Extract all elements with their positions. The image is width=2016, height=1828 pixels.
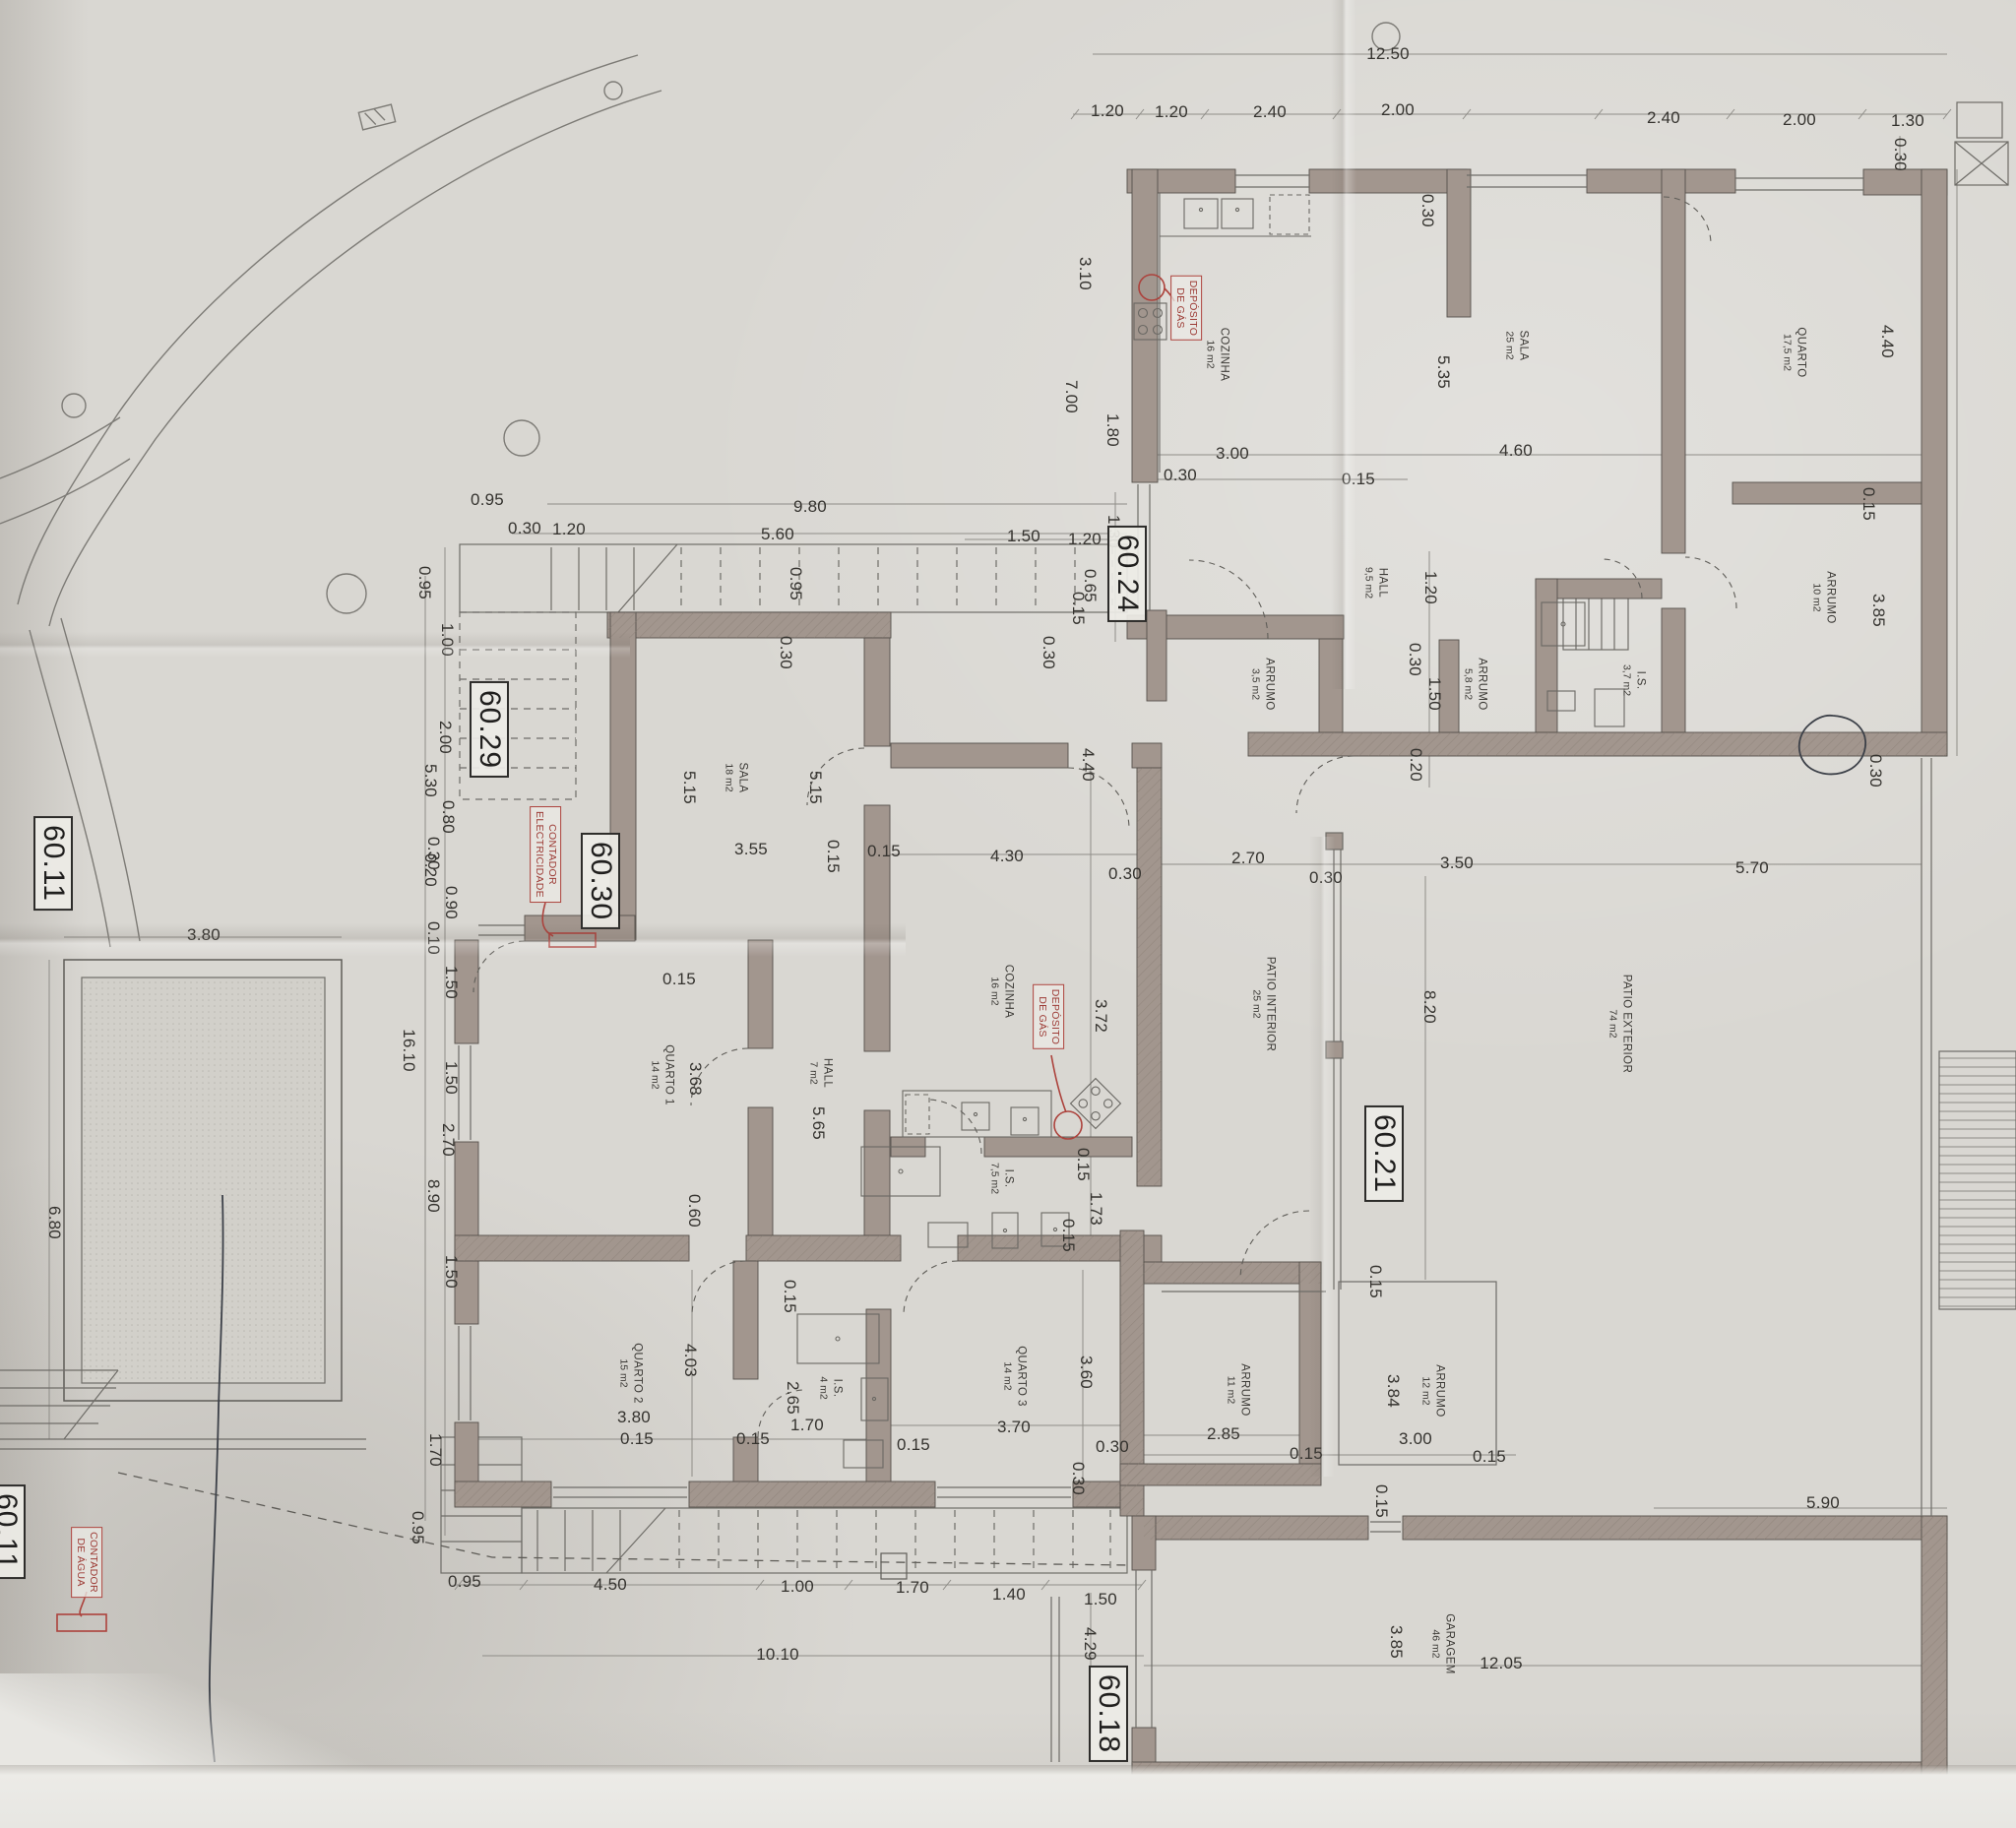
room-name: GARAGEM: [1441, 1613, 1456, 1674]
dim-label: 2.40: [1253, 102, 1287, 122]
dim-label: 2.00: [1381, 100, 1415, 120]
dim-label: 3.55: [734, 840, 768, 859]
dim-label: 0.30: [508, 519, 541, 538]
room-area: 5,8 m2: [1461, 658, 1475, 711]
dim-label: 0.30: [1108, 864, 1142, 884]
red-annotation-contador-agua: CONTADORDE ÁGUA: [71, 1527, 102, 1598]
room-area: 16 m2: [987, 965, 1001, 1019]
room-label-is-7-5: I.S.7,5 m2: [987, 1163, 1016, 1194]
room-area: 25 m2: [1502, 330, 1516, 360]
room-area: 17,5 m2: [1780, 327, 1794, 377]
room-name: HALL: [819, 1058, 834, 1088]
dim-label: 1.50: [1007, 527, 1040, 546]
dim-label-vertical: 16.10: [399, 1029, 418, 1072]
dim-label: 4.60: [1499, 441, 1533, 461]
room-label-quarto-1: QUARTO 114 m2: [648, 1044, 676, 1105]
dim-label: 0.30: [1096, 1437, 1129, 1457]
dim-label-vertical: 0.30: [1039, 636, 1058, 669]
room-label-garagem: GARAGEM46 m2: [1428, 1613, 1457, 1674]
dim-label: 1.70: [790, 1416, 824, 1435]
dim-label: 1.70: [896, 1578, 929, 1598]
room-label-hall-a: HALL9,5 m2: [1361, 567, 1390, 599]
red-annotation-line: DEPÓSITO: [1048, 989, 1061, 1044]
dim-label-vertical: 0.15: [1371, 1484, 1391, 1518]
dim-label-vertical: 1.50: [1424, 677, 1444, 711]
dim-label: 3.00: [1216, 444, 1249, 464]
dim-label-vertical: 3.84: [1383, 1374, 1403, 1408]
red-annotation-line: CONTADOR: [545, 811, 558, 898]
room-label-quarto-a: QUARTO17,5 m2: [1780, 327, 1808, 377]
room-name: COZINHA: [1216, 328, 1230, 382]
room-area: 74 m2: [1606, 975, 1619, 1073]
room-name: I.S.: [1000, 1163, 1015, 1194]
room-area: 25 m2: [1249, 957, 1263, 1052]
room-area: 3,7 m2: [1619, 664, 1633, 696]
elevation-marker-60-30: 60.30: [581, 833, 620, 929]
dim-label-vertical: 0.90: [441, 886, 461, 919]
dim-label: 4.50: [594, 1575, 627, 1595]
room-label-arrumo-11: ARRUMO11 m2: [1224, 1363, 1252, 1417]
dim-label-vertical: 2.00: [435, 721, 455, 754]
red-annotation-line: DE GÁS: [1173, 281, 1186, 336]
room-name: QUARTO 1: [661, 1044, 675, 1105]
dim-label: 1.20: [552, 520, 586, 539]
dim-label-vertical: 0.10: [423, 921, 443, 955]
dim-label-vertical: 0.15: [1858, 487, 1878, 521]
dim-label-vertical: 3.68: [685, 1062, 705, 1096]
elevation-marker-60-11: 60.11: [0, 1484, 26, 1579]
room-area: 18 m2: [722, 762, 735, 792]
elevation-marker-60-18: 60.18: [1089, 1666, 1128, 1762]
room-label-quarto-2: QUARTO 215 m2: [616, 1343, 645, 1404]
dim-label: 2.00: [1783, 110, 1816, 130]
dim-label-vertical: 0.30: [1890, 138, 1910, 171]
dim-label-vertical: 2.70: [438, 1123, 458, 1157]
dim-label-vertical: 0.95: [414, 566, 434, 599]
dim-label-vertical: 0.30: [776, 636, 795, 669]
elevation-marker-60-11: 60.11: [33, 816, 73, 911]
dim-label-vertical: 1.73: [1086, 1192, 1105, 1226]
dim-label-vertical: 1.80: [1102, 413, 1122, 447]
red-annotation-contador-electricidade: CONTADORELECTRICIDADE: [530, 806, 561, 903]
room-label-patio-exterior: PATIO EXTERIOR74 m2: [1606, 975, 1634, 1073]
red-annotation-line: CONTADOR: [87, 1532, 99, 1593]
dim-label-vertical: 0.15: [1365, 1265, 1385, 1298]
dim-label: 1.50: [1084, 1590, 1117, 1609]
dim-label: 2.70: [1231, 849, 1265, 868]
dim-label: 0.95: [471, 490, 504, 510]
plan-text-labels: 12.501.201.202.402.002.402.001.303.004.6…: [0, 0, 2016, 1828]
room-name: SALA: [734, 762, 749, 792]
room-area: 46 m2: [1428, 1613, 1442, 1674]
dim-label: 1.30: [1891, 111, 1924, 131]
dim-label-vertical: 3.60: [1076, 1355, 1096, 1389]
dim-label-vertical: 1.20: [1420, 571, 1440, 604]
dim-label: 9.80: [793, 497, 827, 517]
dim-label: 0.15: [620, 1429, 654, 1449]
dim-label-vertical: 0.15: [823, 840, 843, 873]
dim-label: 10.10: [756, 1645, 799, 1665]
dim-label: 3.70: [997, 1418, 1031, 1437]
dim-label-vertical: 1.50: [441, 1061, 461, 1095]
red-annotation-line: DEPÓSITO: [1186, 281, 1199, 336]
dim-label-vertical: 0.15: [1073, 1148, 1093, 1181]
dim-label-vertical: 0.15: [1058, 1219, 1078, 1252]
room-label-quarto-3: QUARTO 314 m2: [1000, 1346, 1029, 1407]
room-area: 16 m2: [1203, 328, 1217, 382]
red-annotation-line: DE GÁS: [1036, 989, 1048, 1044]
room-label-arrumo-10: ARRUMO10 m2: [1809, 571, 1838, 624]
room-area: 12 m2: [1418, 1364, 1432, 1418]
elevation-marker-60-21: 60.21: [1364, 1105, 1404, 1202]
room-label-arrumo-5-8: ARRUMO5,8 m2: [1461, 658, 1489, 711]
dim-label: 0.15: [1342, 470, 1375, 489]
room-name: ARRUMO: [1474, 658, 1488, 711]
dim-label: 0.15: [1290, 1444, 1323, 1464]
room-area: 7,5 m2: [987, 1163, 1001, 1194]
red-annotation-line: DE ÁGUA: [74, 1532, 87, 1593]
dim-label: 4.30: [990, 847, 1024, 866]
dim-label-vertical: 0.30: [1405, 643, 1424, 676]
dim-label-vertical: 3.85: [1868, 594, 1888, 627]
red-annotation-line: ELECTRICIDADE: [533, 811, 545, 898]
dim-label-vertical: 0.30: [1068, 1462, 1088, 1495]
dim-label-vertical: 4.29: [1080, 1627, 1100, 1661]
room-area: 4 m2: [816, 1376, 830, 1399]
dim-label: 0.30: [1164, 466, 1197, 485]
room-label-arrumo-3-5: ARRUMO3,5 m2: [1248, 658, 1277, 711]
dim-label: 3.50: [1440, 853, 1474, 873]
room-area: 10 m2: [1809, 571, 1823, 624]
room-label-sala-b: SALA18 m2: [722, 762, 750, 792]
dim-label: 0.15: [897, 1435, 930, 1455]
dim-label: 2.85: [1207, 1424, 1240, 1444]
room-name: QUARTO 3: [1013, 1346, 1028, 1407]
dim-label: 2.40: [1647, 108, 1680, 128]
room-area: 14 m2: [648, 1044, 661, 1105]
dim-label-vertical: 0.20: [1406, 748, 1425, 782]
dim-label: 0.95: [448, 1572, 481, 1592]
dim-label: 1.20: [1068, 530, 1102, 549]
dim-label: 0.15: [662, 970, 696, 989]
room-area: 9,5 m2: [1361, 567, 1375, 599]
room-name: SALA: [1515, 330, 1530, 360]
room-name: PATIO INTERIOR: [1262, 957, 1277, 1052]
dim-label-vertical: 3.85: [1386, 1625, 1406, 1659]
dim-label-vertical: 8.90: [423, 1179, 443, 1213]
dim-label: 0.30: [1309, 868, 1343, 888]
dim-label-vertical: 1.50: [441, 966, 461, 999]
room-name: I.S.: [1632, 664, 1647, 696]
red-annotation-deposito-gas-2: DEPÓSITODE GÁS: [1033, 984, 1064, 1049]
dim-label-vertical: 0.15: [1068, 592, 1088, 625]
room-area: 11 m2: [1224, 1363, 1237, 1417]
room-area: 3,5 m2: [1248, 658, 1262, 711]
dim-label: 5.60: [761, 525, 794, 544]
dim-label-vertical: 5.30: [420, 764, 440, 797]
dim-label: 12.05: [1480, 1654, 1523, 1673]
dim-label-vertical: 5.35: [1433, 355, 1453, 389]
dim-label-vertical: 8.20: [1419, 990, 1439, 1024]
room-name: ARRUMO: [1236, 1363, 1251, 1417]
dim-label: 3.80: [187, 925, 220, 945]
room-name: ARRUMO: [1822, 571, 1837, 624]
dim-label-vertical: 0.20: [420, 853, 440, 887]
room-name: I.S.: [829, 1376, 844, 1399]
dim-label-vertical: 4.40: [1078, 748, 1098, 782]
room-label-sala-a: SALA25 m2: [1502, 330, 1531, 360]
room-area: 14 m2: [1000, 1346, 1014, 1407]
dim-label: 1.20: [1091, 101, 1124, 121]
dim-label-vertical: 2.65: [783, 1381, 802, 1415]
dim-label-vertical: 4.40: [1877, 325, 1897, 358]
dim-label-vertical: 0.15: [780, 1280, 799, 1313]
dim-label-vertical: 0.60: [684, 1194, 704, 1228]
elevation-marker-60-24: 60.24: [1107, 526, 1147, 622]
red-annotation-deposito-gas-1: DEPÓSITODE GÁS: [1170, 276, 1202, 341]
room-label-arrumo-12: ARRUMO12 m2: [1418, 1364, 1447, 1418]
elevation-marker-60-29: 60.29: [470, 681, 509, 778]
dim-label-vertical: 1.50: [441, 1255, 461, 1289]
dim-label-vertical: 4.03: [680, 1344, 700, 1377]
dim-label: 1.40: [992, 1585, 1026, 1605]
dim-label: 3.80: [617, 1408, 651, 1427]
room-name: QUARTO: [1793, 327, 1807, 377]
dim-label-vertical: 7.00: [1061, 380, 1081, 413]
dim-label: 0.15: [867, 842, 901, 861]
dim-label: 0.15: [736, 1429, 770, 1449]
dim-label-vertical: 0.80: [438, 800, 458, 834]
dim-label-vertical: 0.95: [408, 1511, 427, 1544]
dim-label-vertical: 5.15: [679, 771, 699, 804]
room-name: ARRUMO: [1431, 1364, 1446, 1418]
dim-label-vertical: 3.10: [1075, 257, 1095, 290]
dim-label-vertical: 0.95: [786, 567, 805, 600]
dim-label: 3.00: [1399, 1429, 1432, 1449]
room-area: 7 m2: [806, 1058, 820, 1088]
dim-label-vertical: 0.30: [1417, 194, 1437, 227]
room-label-cozinha-a: COZINHA16 m2: [1203, 328, 1231, 382]
dim-label-vertical: 0.30: [1865, 754, 1885, 788]
dim-label-vertical: 3.72: [1091, 999, 1110, 1033]
dim-label: 1.20: [1155, 102, 1188, 122]
room-name: QUARTO 2: [629, 1343, 644, 1404]
room-label-patio-interior: PATIO INTERIOR25 m2: [1249, 957, 1278, 1052]
dim-label-vertical: 5.65: [808, 1106, 828, 1140]
room-label-cozinha-b: COZINHA16 m2: [987, 965, 1016, 1019]
room-name: HALL: [1374, 567, 1389, 599]
dim-label: 5.90: [1806, 1493, 1840, 1513]
floor-plan-photo: 12.501.201.202.402.002.402.001.303.004.6…: [0, 0, 2016, 1828]
room-label-hall-b: HALL7 m2: [806, 1058, 835, 1088]
room-name: COZINHA: [1000, 965, 1015, 1019]
room-label-is-3-7: I.S.3,7 m2: [1619, 664, 1648, 696]
dim-label: 1.00: [781, 1577, 814, 1597]
dim-label: 12.50: [1366, 44, 1410, 64]
room-name: ARRUMO: [1261, 658, 1276, 711]
dim-label-vertical: 5.15: [805, 771, 825, 804]
dim-label-vertical: 1.00: [437, 623, 457, 657]
room-area: 15 m2: [616, 1343, 630, 1404]
dim-label: 0.15: [1473, 1447, 1506, 1467]
room-label-is-4: I.S.4 m2: [816, 1376, 845, 1399]
dim-label: 5.70: [1735, 858, 1769, 878]
dim-label-vertical: 1.70: [425, 1433, 445, 1467]
room-name: PATIO EXTERIOR: [1618, 975, 1633, 1073]
dim-label-vertical: 6.80: [44, 1206, 64, 1239]
